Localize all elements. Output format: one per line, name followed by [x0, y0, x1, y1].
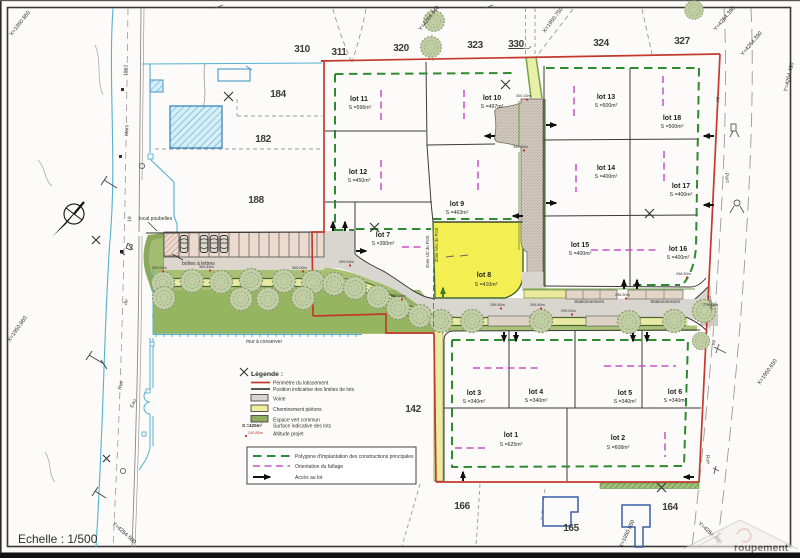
svg-text:S =400m²: S =400m²	[595, 174, 618, 180]
svg-text:299.00m: 299.00m	[561, 309, 576, 313]
svg-text:mur à conserver: mur à conserver	[246, 339, 282, 345]
svg-text:Stationnement: Stationnement	[650, 299, 680, 304]
svg-text:299.50m: 299.50m	[391, 294, 406, 298]
svg-text:19: 19	[127, 216, 133, 222]
svg-text:lot 7: lot 7	[376, 232, 390, 239]
svg-text:299.93m: 299.93m	[339, 260, 354, 264]
svg-text:S =625m²: S =625m²	[500, 442, 523, 448]
svg-text:S =340m²: S =340m²	[463, 399, 486, 405]
svg-text:du: du	[710, 340, 717, 346]
svg-text:298.50m: 298.50m	[676, 272, 691, 276]
svg-text:lot 11: lot 11	[350, 96, 368, 103]
svg-text:165: 165	[563, 523, 579, 534]
svg-text:300.00m: 300.00m	[152, 266, 167, 270]
svg-text:Accès au lot: Accès au lot	[295, 475, 323, 481]
svg-text:lot 6: lot 6	[668, 389, 682, 396]
svg-text:327: 327	[674, 36, 690, 47]
svg-text:lot 10: lot 10	[483, 95, 501, 102]
svg-text:299.50m: 299.50m	[490, 303, 505, 307]
svg-text:188: 188	[248, 195, 264, 206]
svg-text:Echelle : 1/500: Echelle : 1/500	[18, 532, 98, 546]
svg-text:S =410m²: S =410m²	[475, 282, 498, 288]
svg-text:Périmètre du lotissement: Périmètre du lotissement	[273, 381, 329, 387]
svg-text:lot 15: lot 15	[571, 242, 589, 249]
svg-text:Polygone d'implantation des co: Polygone d'implantation des construction…	[295, 454, 414, 460]
svg-text:Stationnement: Stationnement	[574, 299, 604, 304]
svg-text:lot 16: lot 16	[669, 246, 687, 253]
svg-text:S =340m²: S =340m²	[525, 398, 548, 404]
svg-text:310: 310	[294, 44, 310, 55]
svg-text:S =608m²: S =608m²	[607, 445, 630, 451]
svg-text:lot 5: lot 5	[618, 390, 632, 397]
svg-text:lot 12: lot 12	[349, 169, 367, 176]
svg-text:S =596m²: S =596m²	[349, 105, 372, 111]
svg-text:S =340m²: S =340m²	[664, 398, 687, 404]
svg-text:local poubelles: local poubelles	[139, 216, 173, 222]
svg-text:Légende :: Légende :	[251, 371, 283, 378]
svg-text:164: 164	[662, 502, 678, 513]
svg-text:lot 18: lot 18	[663, 115, 681, 122]
svg-text:S =400m²: S =400m²	[670, 192, 693, 198]
svg-text:240.85m: 240.85m	[248, 431, 263, 435]
svg-text:S =400m²: S =400m²	[667, 255, 690, 261]
svg-text:S =463m²: S =463m²	[446, 210, 469, 216]
svg-text:323: 323	[467, 40, 483, 51]
svg-text:Rue: Rue	[704, 455, 711, 465]
svg-text:Altitude projet: Altitude projet	[273, 432, 304, 438]
svg-text:Cheminement piétons: Cheminement piétons	[273, 407, 322, 413]
svg-text:166: 166	[454, 501, 470, 512]
svg-text:Mars: Mars	[124, 124, 130, 136]
svg-text:lot 4: lot 4	[529, 389, 543, 396]
svg-text:345.00m: 345.00m	[513, 145, 528, 149]
svg-text:lot 9: lot 9	[450, 201, 464, 208]
svg-text:S =400m²: S =400m²	[569, 251, 592, 257]
svg-text:lot 13: lot 13	[597, 94, 615, 101]
svg-text:Zone NAc du POS: Zone NAc du POS	[434, 227, 439, 262]
svg-text:Surface indicative des lots: Surface indicative des lots	[273, 424, 332, 430]
svg-text:298.50m: 298.50m	[615, 293, 630, 297]
svg-text:Zone UC du POS: Zone UC du POS	[425, 235, 430, 268]
svg-text:lot 17: lot 17	[672, 183, 690, 190]
svg-text:142: 142	[405, 404, 421, 415]
svg-text:S =340m²: S =340m²	[614, 399, 637, 405]
svg-text:du: du	[714, 96, 721, 103]
svg-text:320: 320	[393, 43, 409, 54]
svg-text:300.15m: 300.15m	[516, 94, 531, 98]
svg-text:300.00m: 300.00m	[292, 266, 307, 270]
svg-text:roupement: roupement	[734, 542, 789, 554]
svg-text:lot 8: lot 8	[477, 272, 491, 279]
svg-text:299.50m: 299.50m	[530, 303, 545, 307]
svg-text:330: 330	[508, 39, 524, 50]
svg-text:S =497m²: S =497m²	[481, 104, 504, 110]
svg-text:Orientation du faîtage: Orientation du faîtage	[295, 464, 343, 470]
svg-text:lot 14: lot 14	[597, 165, 615, 172]
svg-text:324: 324	[593, 38, 609, 49]
svg-text:S =390m²: S =390m²	[372, 241, 395, 247]
svg-text:lot 2: lot 2	[611, 435, 625, 442]
svg-text:300.46m: 300.46m	[199, 265, 214, 269]
svg-text:lot 3: lot 3	[467, 390, 481, 397]
svg-text:S =450m²: S =450m²	[348, 178, 371, 184]
svg-text:S =425m²: S =425m²	[242, 423, 263, 428]
svg-text:1962: 1962	[123, 65, 129, 77]
svg-text:Voirie: Voirie	[273, 397, 286, 403]
svg-text:311: 311	[332, 47, 348, 58]
svg-text:du: du	[123, 299, 129, 305]
svg-text:S =500m²: S =500m²	[595, 103, 618, 109]
svg-text:S =500m²: S =500m²	[661, 124, 684, 130]
svg-text:184: 184	[270, 89, 286, 100]
svg-text:182: 182	[255, 134, 271, 145]
svg-text:lot 1: lot 1	[504, 432, 518, 439]
svg-text:Position indicative des limite: Position indicative des limites de lots	[273, 387, 355, 393]
